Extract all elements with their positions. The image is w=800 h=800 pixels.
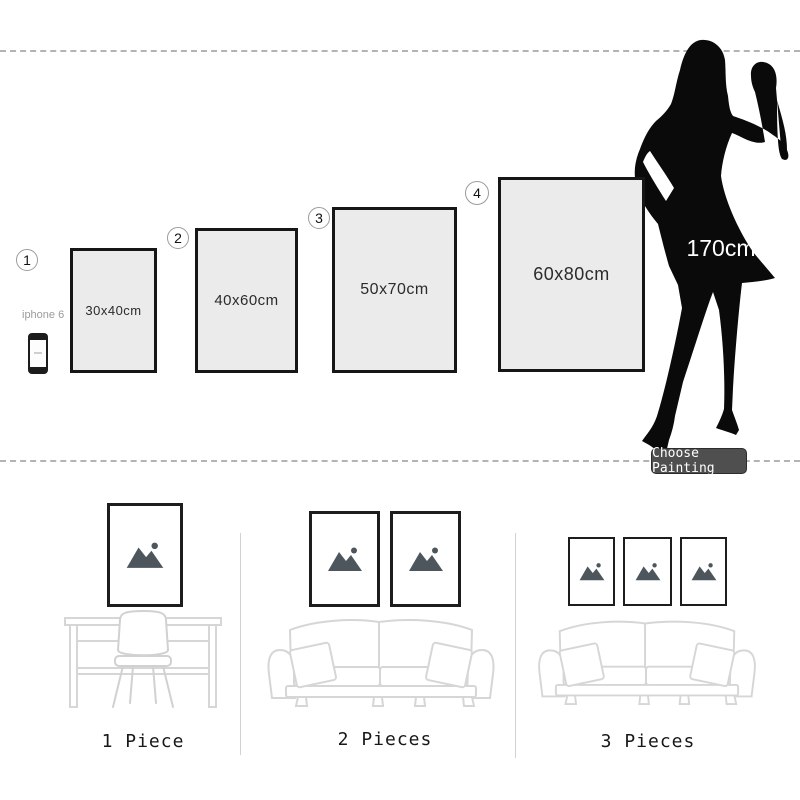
iphone-screen — [30, 340, 46, 367]
scene1-art-frame — [107, 503, 183, 607]
size-frame-60x80-label: 60x80cm — [533, 264, 610, 285]
size-frame-30x40-label: 30x40cm — [85, 303, 141, 318]
desk-with-chair-icon — [62, 610, 224, 712]
mountain-image-icon — [326, 546, 364, 572]
size-option-4-number: 4 — [465, 181, 489, 205]
size-option-3-number: 3 — [308, 207, 330, 229]
iphone-screen-text — [34, 352, 42, 354]
scene1-label: 1 Piece — [63, 731, 223, 752]
mountain-image-icon — [407, 546, 445, 572]
size-option-2-number: 2 — [167, 227, 189, 249]
size-frame-30x40: 30x40cm — [70, 248, 157, 373]
scene3-art-frame-1 — [568, 537, 615, 606]
iphone-icon — [28, 333, 48, 374]
scene3-label: 3 Pieces — [553, 731, 743, 752]
scene2-art-frame-2 — [390, 511, 461, 607]
scene-divider-2 — [515, 533, 516, 758]
sofa-icon — [266, 610, 496, 708]
size-frame-50x70: 50x70cm — [332, 207, 457, 373]
mountain-image-icon — [634, 562, 662, 581]
woman-silhouette-icon: 170cm — [629, 38, 791, 462]
scene-divider-1 — [240, 533, 241, 755]
size-guide-infographic: 170cm iphone 6 1 30x40cm 2 40x60cm 3 50x… — [0, 0, 800, 800]
size-option-1-number: 1 — [16, 249, 38, 271]
size-frame-50x70-label: 50x70cm — [360, 281, 428, 299]
scene3-art-frame-3 — [680, 537, 727, 606]
scene2-art-frame-1 — [309, 511, 380, 607]
iphone-label: iphone 6 — [22, 309, 64, 321]
size-frame-60x80: 60x80cm — [498, 177, 645, 372]
scene3-art-frame-2 — [623, 537, 672, 606]
sofa-icon — [533, 612, 761, 706]
choose-painting-button[interactable]: Choose Painting — [651, 448, 747, 474]
mountain-image-icon — [125, 541, 165, 569]
scene2-label: 2 Pieces — [290, 729, 480, 750]
mountain-image-icon — [578, 562, 606, 581]
size-frame-40x60: 40x60cm — [195, 228, 298, 373]
mountain-image-icon — [690, 562, 718, 581]
size-frame-40x60-label: 40x60cm — [214, 292, 278, 309]
height-label: 170cm — [686, 235, 755, 261]
